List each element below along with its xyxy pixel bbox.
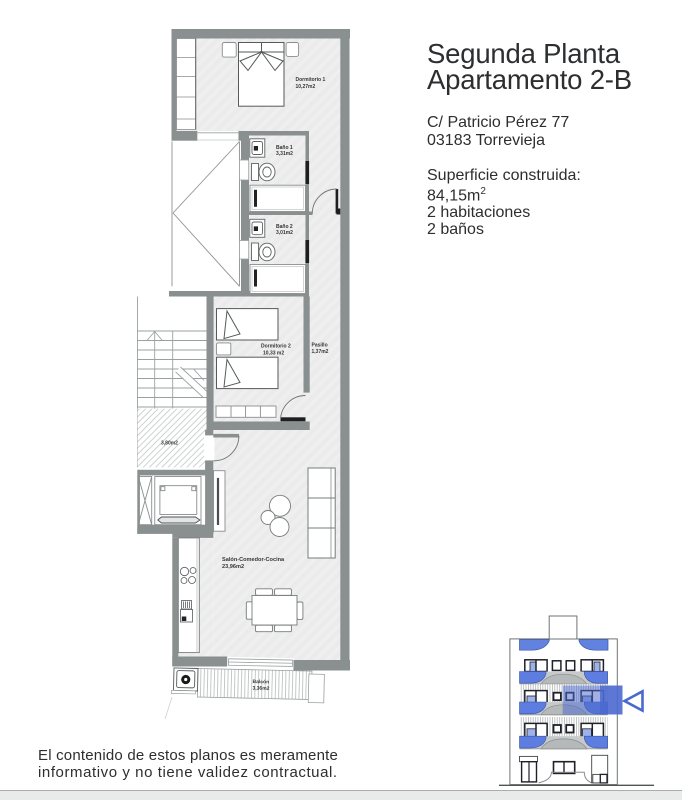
svg-text:Salón-Comedor-Cocina: Salón-Comedor-Cocina xyxy=(222,557,285,563)
svg-text:3,36m2: 3,36m2 xyxy=(252,686,269,692)
svg-text:Balcón: Balcón xyxy=(252,679,269,685)
svg-text:23,96m2: 23,96m2 xyxy=(222,564,244,570)
svg-text:Pasillo: Pasillo xyxy=(312,343,328,349)
svg-text:3,01m2: 3,01m2 xyxy=(276,230,293,236)
svg-text:3,80m2: 3,80m2 xyxy=(161,441,178,447)
svg-text:3,31m2: 3,31m2 xyxy=(276,151,293,157)
svg-text:10,27m2: 10,27m2 xyxy=(296,84,316,90)
svg-text:1,37m2: 1,37m2 xyxy=(312,349,329,355)
svg-text:Dormitorio 2: Dormitorio 2 xyxy=(261,344,291,350)
svg-text:Dormitorio 1: Dormitorio 1 xyxy=(296,77,326,83)
svg-text:10,33 m2: 10,33 m2 xyxy=(263,351,284,357)
